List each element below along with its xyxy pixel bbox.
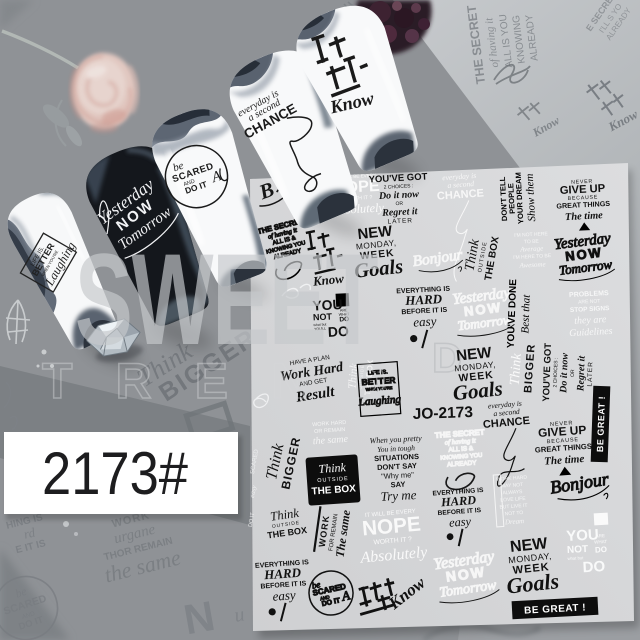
- svg-text:2173#: 2173#: [42, 440, 189, 507]
- svg-text:Dream: Dream: [504, 517, 525, 526]
- svg-text:TREND: TREND: [42, 353, 429, 409]
- svg-text:Best that: Best that: [519, 294, 532, 334]
- svg-text:Think: Think: [318, 460, 347, 476]
- svg-text:WHAT: WHAT: [594, 539, 607, 545]
- svg-text:ARE: ARE: [596, 533, 606, 538]
- svg-text:DO: DO: [582, 558, 606, 576]
- svg-text:Show them: Show them: [524, 173, 538, 222]
- svg-text:DO: DO: [595, 545, 607, 555]
- svg-text:SWEET: SWEET: [75, 227, 378, 373]
- svg-text:NOT: NOT: [567, 544, 589, 556]
- svg-text:BE GREAT !: BE GREAT !: [595, 396, 607, 453]
